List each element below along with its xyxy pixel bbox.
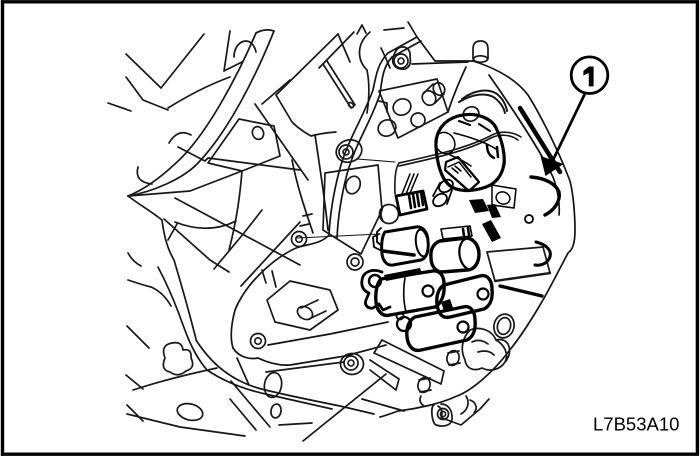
svg-text:L7B53A10: L7B53A10 <box>593 414 679 435</box>
